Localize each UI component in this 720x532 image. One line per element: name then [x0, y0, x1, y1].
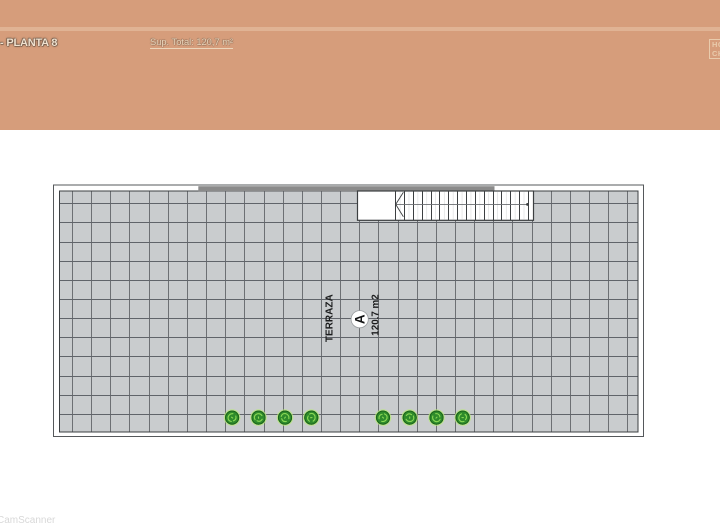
svg-text:A: A	[353, 314, 368, 324]
svg-text:120.7 m2: 120.7 m2	[371, 294, 382, 336]
svg-text:TERRAZA: TERRAZA	[325, 294, 336, 342]
